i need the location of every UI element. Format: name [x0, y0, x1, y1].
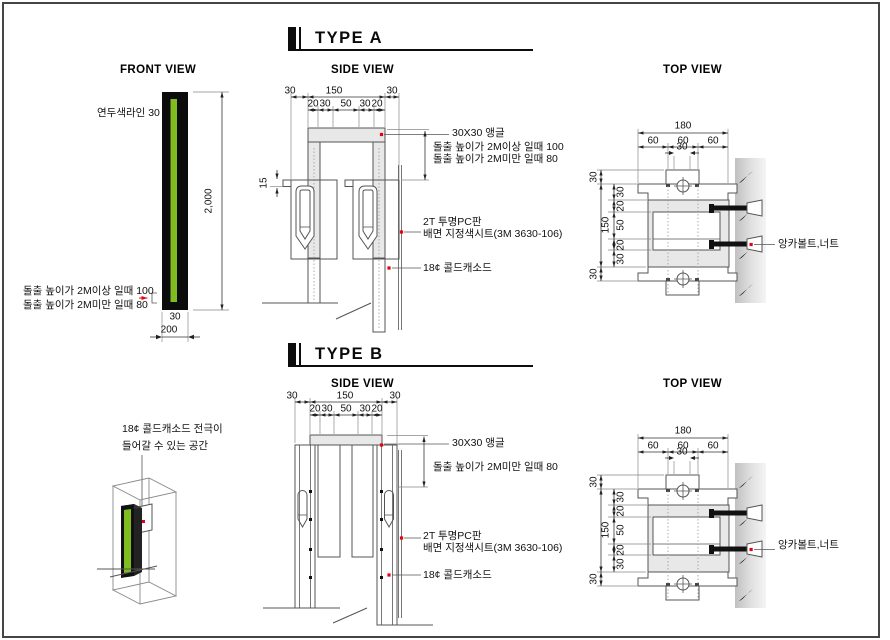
dim-height: 2,000: [204, 188, 215, 213]
dim: 30: [359, 404, 370, 415]
dim: 20: [371, 404, 382, 415]
break-line: [336, 303, 371, 319]
protrusion-note-under: 돌출 높이가 2M미만 일때 80: [433, 461, 558, 473]
protrusion-note-under: 돌출 높이가 2M미만 일때 80: [23, 299, 148, 311]
title-underline: [288, 49, 533, 51]
dim: 150: [337, 391, 354, 402]
post-left: [295, 445, 315, 608]
typeA-front-view-drawing: [139, 92, 229, 342]
dim: 30: [676, 142, 687, 153]
typeB-side-view-drawing: [263, 398, 449, 625]
dim: 150: [601, 522, 612, 539]
dim: 50: [340, 99, 351, 110]
iso-box-top: [113, 478, 176, 500]
dim: 30: [589, 171, 600, 182]
dim: 30: [616, 186, 627, 197]
cathode-space-note-2: 들어갈 수 있는 공간: [122, 440, 208, 452]
green-light-line-iso: [124, 509, 131, 573]
pc-panel-label: 2T 투명PC판: [423, 530, 482, 542]
dim: 150: [601, 217, 612, 234]
green-bar-side: [134, 504, 142, 576]
dim: 30: [286, 391, 297, 402]
dim: 30: [389, 391, 400, 402]
green-light-line: [171, 99, 178, 302]
dim: 30: [676, 447, 687, 458]
title-underline: [288, 365, 533, 367]
dim: 30: [359, 99, 370, 110]
green-line-label: 연두색라인 30: [97, 107, 160, 119]
dim: 50: [340, 404, 351, 415]
wall-section: [735, 158, 766, 303]
drawing-sheet: TYPE A TYPE B FRONT VIEW SIDE VIEW TOP V…: [0, 0, 890, 640]
dim: 150: [326, 86, 343, 97]
pc-panel-label: 2T 투명PC판: [423, 216, 482, 228]
angle-label: 30X30 앵글: [452, 127, 505, 139]
title-bar-icon: [288, 27, 296, 49]
dim: 30: [616, 491, 627, 502]
cap-angle: [310, 435, 382, 445]
leader-dot: [380, 443, 383, 446]
dim: 60: [707, 136, 718, 147]
dim: 20: [371, 99, 382, 110]
leader-dot: [387, 573, 390, 576]
dim-15: 15: [259, 177, 270, 188]
title-bar-icon: [288, 343, 296, 365]
typeB-iso-drawing: [97, 455, 176, 604]
typeA-side-view-drawing: [262, 93, 449, 332]
dim: 30: [284, 86, 295, 97]
dim-base-width: 200: [161, 325, 178, 336]
protrusion-note-under: 돌출 높이가 2M미만 일때 80: [433, 153, 558, 165]
dim-bar-width: 30: [169, 312, 180, 323]
dim: 50: [616, 524, 627, 535]
dim: 60: [707, 441, 718, 452]
post-right: [377, 445, 397, 625]
type-a-title: TYPE A: [315, 29, 383, 48]
dim: 30: [616, 558, 627, 569]
leader-dot: [750, 243, 753, 246]
panel-right: [352, 445, 373, 557]
dim: 20: [616, 544, 627, 555]
typeA-top-view-drawing: [597, 129, 775, 303]
leader-dot: [400, 536, 403, 539]
anchor-bolt-label: 앙카볼트,너트: [778, 238, 839, 250]
dim: 20: [616, 200, 627, 211]
dim: 20: [307, 99, 318, 110]
dim: 30: [589, 573, 600, 584]
color-sheet-label: 배면 지정색시트(3M 3630-106): [423, 542, 562, 554]
typeA-front-view-title: FRONT VIEW: [120, 64, 196, 76]
angle-label: 30X30 앵글: [452, 437, 505, 449]
typeA-top-view-title: TOP VIEW: [663, 64, 722, 76]
title-bar-icon: [299, 27, 301, 49]
cathode-label: 18¢ 콜드캐소드: [423, 569, 492, 581]
protrusion-note-over: 돌출 높이가 2M이상 일때 100: [23, 285, 154, 297]
anchor-bolt-1: [714, 206, 747, 211]
title-bar-icon: [299, 343, 301, 365]
dim: 180: [675, 121, 692, 132]
dim: 20: [309, 404, 320, 415]
dim: 180: [675, 426, 692, 437]
cathode-label: 18¢ 콜드캐소드: [423, 262, 492, 274]
dim: 30: [589, 268, 600, 279]
iso-box-bottom: [113, 582, 176, 604]
leader-dot: [380, 133, 383, 136]
color-sheet-label: 배면 지정색시트(3M 3630-106): [423, 228, 562, 240]
cathode-space-note-1: 18¢ 콜드캐소드 전극이: [122, 423, 223, 435]
typeB-top-view-title: TOP VIEW: [663, 378, 722, 390]
typeA-side-view-title: SIDE VIEW: [331, 64, 394, 76]
type-b-title: TYPE B: [315, 345, 384, 364]
leader-dot: [387, 266, 390, 269]
dim: 30: [616, 253, 627, 264]
typeB-side-view-title: SIDE VIEW: [331, 378, 394, 390]
dim: 30: [321, 404, 332, 415]
leader-dot: [400, 230, 403, 233]
dim: 50: [616, 219, 627, 230]
dim: 20: [616, 239, 627, 250]
dim: 60: [647, 136, 658, 147]
dim: 30: [386, 86, 397, 97]
anchor-bolt-label: 앙카볼트,너트: [778, 539, 839, 551]
typeB-top-view-drawing: [597, 434, 775, 608]
channel-top: [308, 128, 385, 142]
dim: 30: [589, 476, 600, 487]
anchor-bolt-2: [714, 242, 747, 247]
panel-left: [318, 445, 340, 557]
protrusion-note-over: 돌출 높이가 2M이상 일때 100: [433, 141, 564, 153]
dim: 20: [616, 505, 627, 516]
break-line: [333, 608, 367, 623]
dim: 30: [319, 99, 330, 110]
dim: 60: [647, 441, 658, 452]
